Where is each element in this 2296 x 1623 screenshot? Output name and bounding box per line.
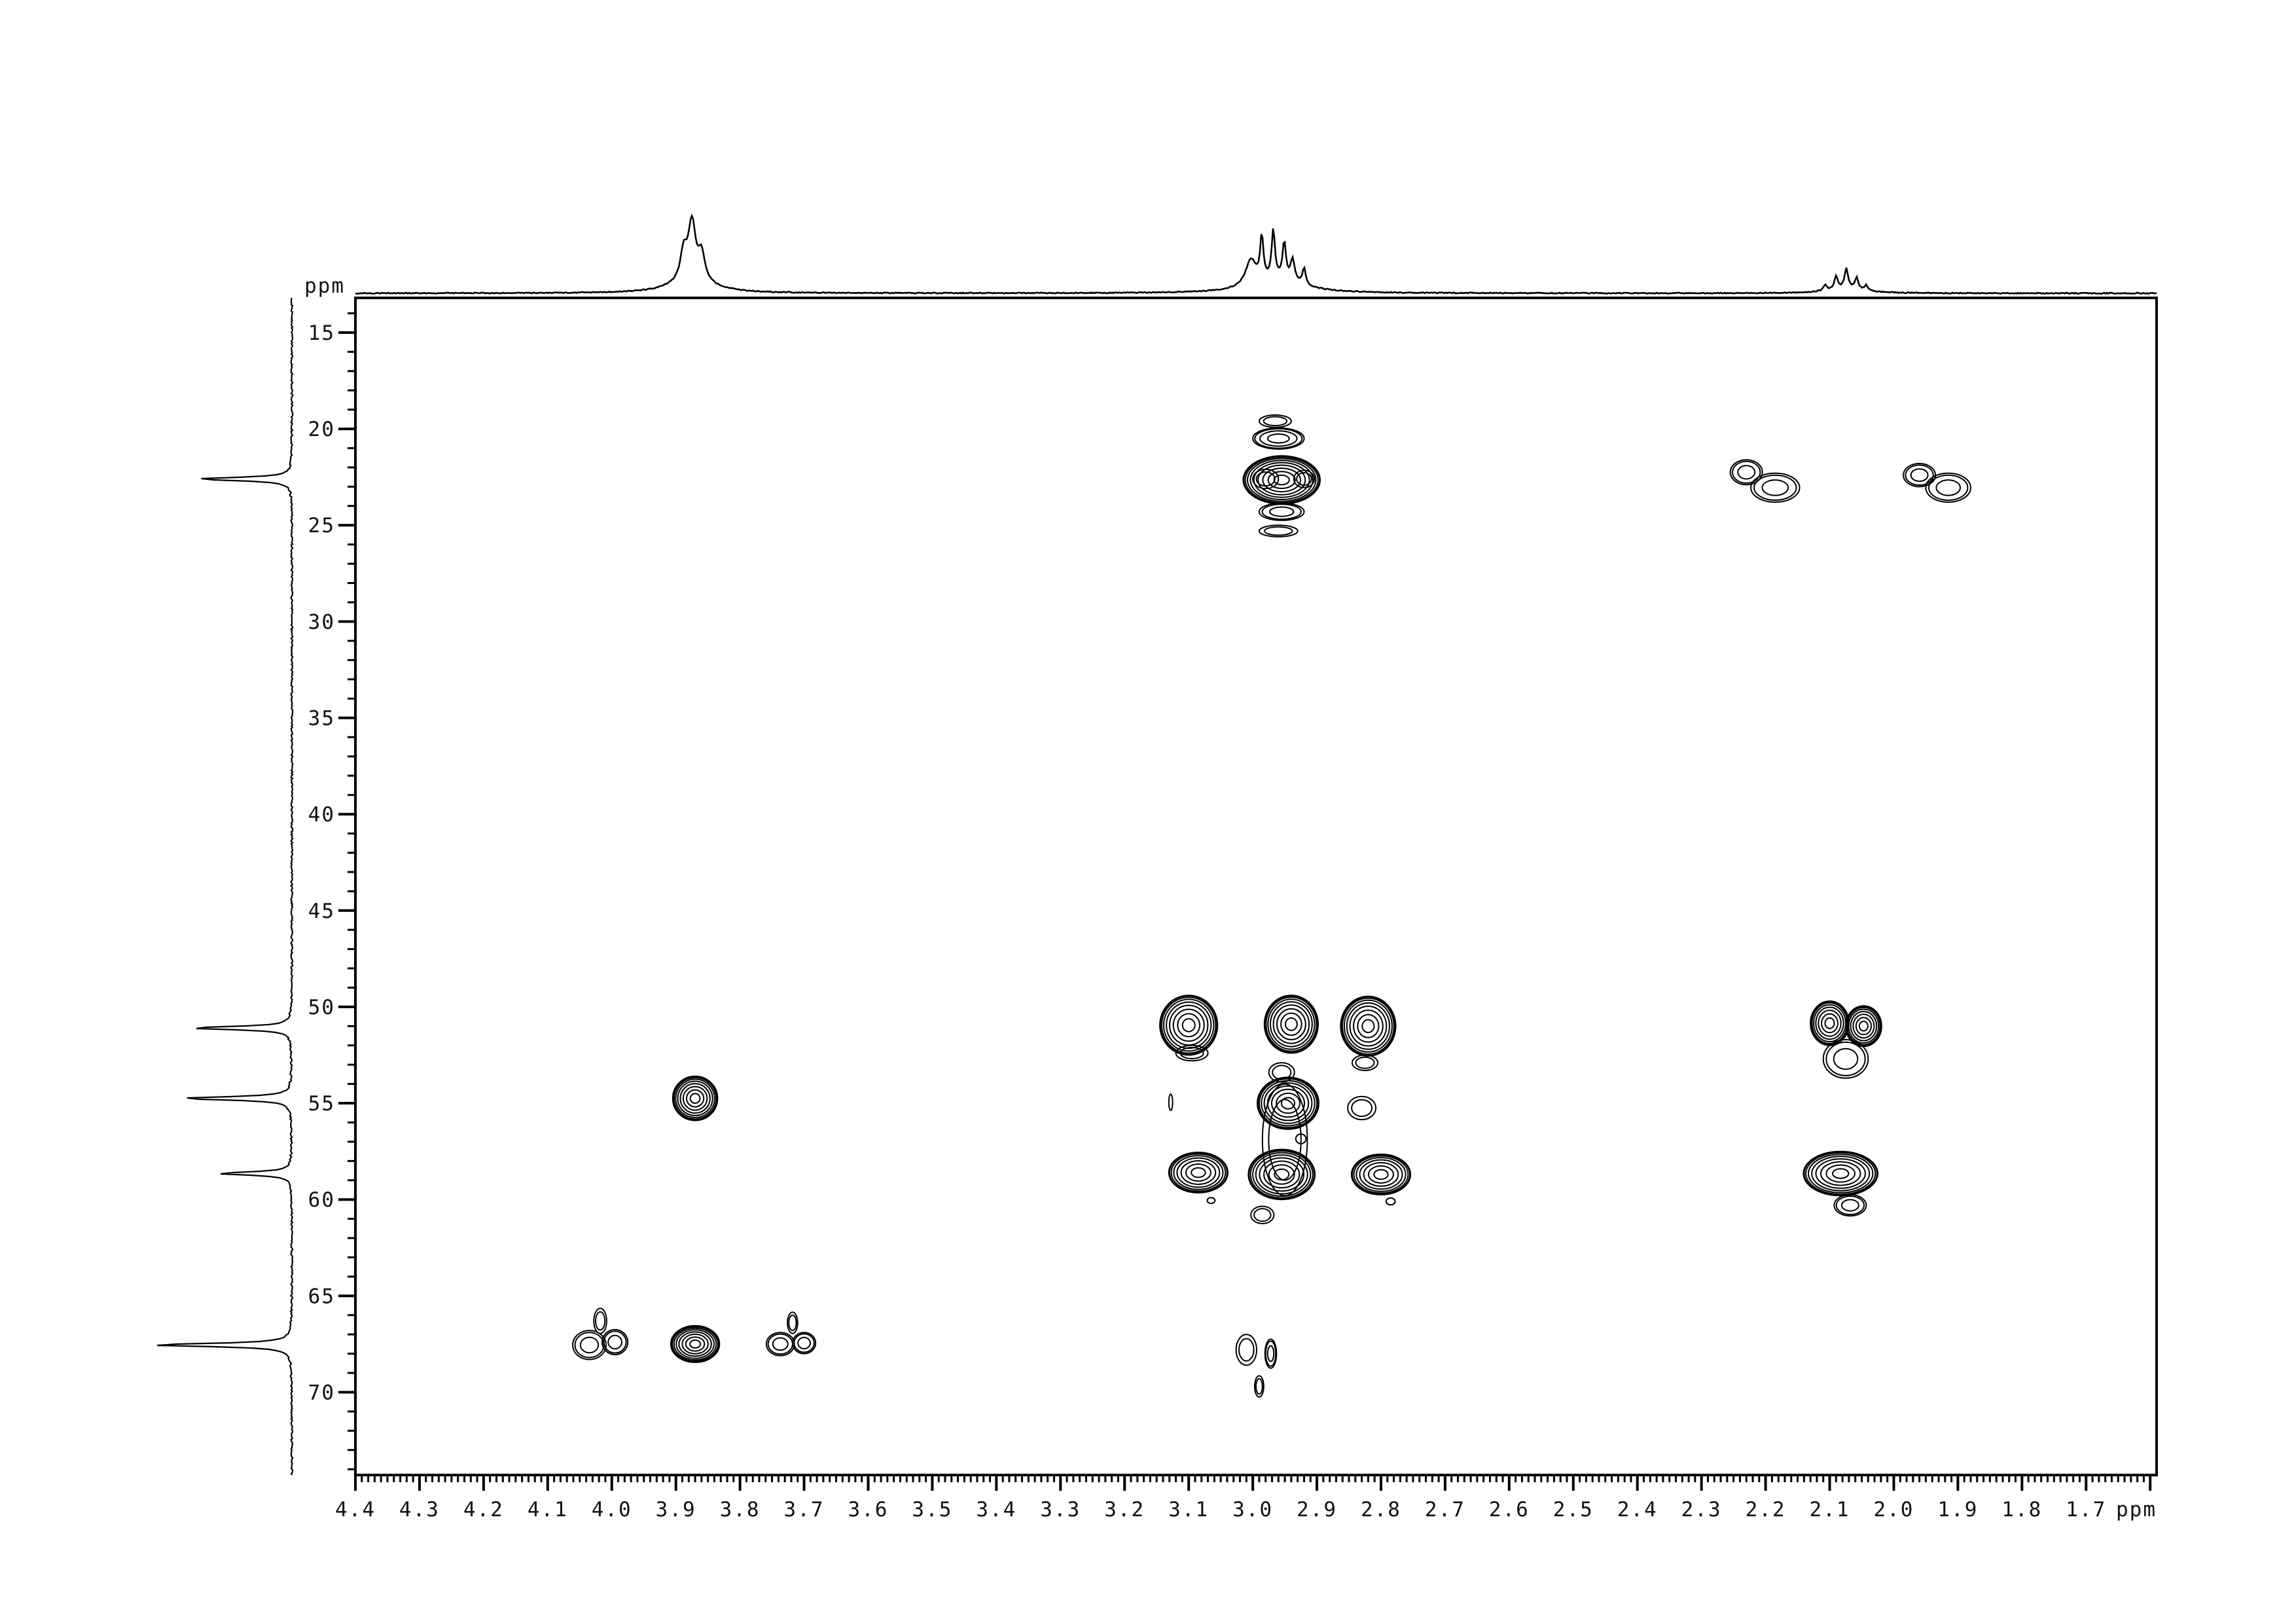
- cross-peak: [1243, 456, 1320, 504]
- cross-peak: [1236, 1334, 1257, 1365]
- cross-peak: [1248, 1150, 1315, 1200]
- x-tick-label: 2.0: [1873, 1498, 1914, 1522]
- cross-peak: [1265, 995, 1318, 1053]
- y-tick-label: 50: [308, 996, 335, 1019]
- cross-peak: [1926, 473, 1971, 502]
- cross-peak: [1255, 1376, 1264, 1396]
- cross-peak: [787, 1312, 798, 1333]
- cross-peak: [1265, 1340, 1277, 1368]
- x-tick-label: 3.9: [656, 1498, 696, 1522]
- x-tick-label: 1.8: [2001, 1498, 2042, 1522]
- y-axis-unit-label: ppm: [304, 274, 345, 298]
- y-tick-label: 15: [308, 321, 335, 345]
- h1-projection-trace: [355, 216, 2157, 294]
- cross-peak: [1823, 1040, 1869, 1078]
- cross-peak: [1834, 1195, 1866, 1216]
- cross-peak: [1751, 473, 1799, 502]
- cross-peak: [1208, 1197, 1215, 1203]
- x-tick-label: 2.2: [1746, 1498, 1786, 1522]
- cross-peak: [1259, 525, 1298, 537]
- cross-peak: [1259, 415, 1291, 428]
- x-tick-label: 4.3: [399, 1498, 440, 1522]
- plot-frame: [355, 298, 2157, 1475]
- x-tick-label: 2.1: [1810, 1498, 1850, 1522]
- cross-peak: [1352, 1055, 1378, 1071]
- nmr-spectrum-page: 4.44.34.24.14.03.93.83.73.63.53.43.33.23…: [0, 0, 2296, 1623]
- cross-peak: [1259, 503, 1304, 520]
- x-tick-label: 3.0: [1232, 1498, 1273, 1522]
- cross-peak: [1253, 428, 1304, 449]
- cross-peak: [1340, 996, 1395, 1056]
- x-tick-label: 4.2: [463, 1498, 504, 1522]
- cross-peak: [671, 1326, 719, 1362]
- y-tick-label: 30: [308, 610, 335, 634]
- cross-peak: [1803, 1152, 1878, 1196]
- x-tick-label: 3.8: [720, 1498, 761, 1522]
- x-tick-label: 3.4: [976, 1498, 1016, 1522]
- x-tick-label: 2.6: [1489, 1498, 1530, 1522]
- x-tick-label: 3.7: [784, 1498, 825, 1522]
- c13-projection-trace: [157, 298, 293, 1475]
- x-tick-label: 4.0: [592, 1498, 632, 1522]
- cross-peak: [1169, 1152, 1228, 1193]
- x-axis: 4.44.34.24.14.03.93.83.73.63.53.43.33.23…: [335, 1475, 2150, 1522]
- y-tick-label: 65: [308, 1285, 335, 1308]
- x-tick-label: 2.4: [1617, 1498, 1658, 1522]
- generated-plot-layers: 4.44.34.24.14.03.93.83.73.63.53.43.33.23…: [157, 216, 2157, 1522]
- y-tick-label: 55: [308, 1092, 335, 1116]
- cross-peak: [594, 1309, 607, 1334]
- x-tick-label: 3.6: [848, 1498, 888, 1522]
- x-tick-label: 4.1: [528, 1498, 568, 1522]
- cross-peak: [1251, 1207, 1274, 1224]
- cross-peak: [1253, 469, 1278, 488]
- x-tick-label: 3.5: [912, 1498, 952, 1522]
- cross-peaks-layer: [573, 415, 1971, 1397]
- cross-peak: [1348, 1097, 1376, 1120]
- cross-peak: [793, 1332, 816, 1353]
- cross-peak: [1810, 1001, 1849, 1046]
- cross-peak: [766, 1332, 795, 1355]
- x-tick-label: 3.1: [1168, 1498, 1209, 1522]
- cross-peak: [1352, 1154, 1410, 1195]
- x-tick-label: 2.8: [1361, 1498, 1401, 1522]
- y-tick-label: 25: [308, 514, 335, 538]
- nmr-2d-contour-spectrum: 4.44.34.24.14.03.93.83.73.63.53.43.33.23…: [0, 0, 2296, 1623]
- x-tick-label: 2.5: [1553, 1498, 1594, 1522]
- cross-peak: [1269, 1063, 1295, 1082]
- cross-peak: [1294, 470, 1314, 487]
- x-tick-label: 3.3: [1040, 1498, 1081, 1522]
- x-tick-label: 3.2: [1104, 1498, 1145, 1522]
- x-tick-label: 1.7: [2066, 1498, 2106, 1522]
- y-tick-label: 70: [308, 1381, 335, 1404]
- cross-peak: [573, 1330, 606, 1359]
- x-tick-label: 4.4: [335, 1498, 376, 1522]
- cross-peak: [1386, 1198, 1395, 1205]
- x-tick-label: 2.3: [1681, 1498, 1722, 1522]
- y-tick-label: 35: [308, 707, 335, 731]
- cross-peak: [1169, 1094, 1173, 1110]
- x-tick-label: 1.9: [1937, 1498, 1978, 1522]
- y-tick-label: 60: [308, 1188, 335, 1212]
- x-tick-label: 2.7: [1425, 1498, 1465, 1522]
- y-tick-label: 40: [308, 803, 335, 827]
- x-axis-unit-label: ppm: [2116, 1498, 2157, 1522]
- x-tick-label: 2.9: [1297, 1498, 1337, 1522]
- y-axis: 152025303540455055606570: [308, 314, 355, 1470]
- y-tick-label: 45: [308, 900, 335, 923]
- y-tick-label: 20: [308, 418, 335, 441]
- cross-peak: [673, 1076, 718, 1121]
